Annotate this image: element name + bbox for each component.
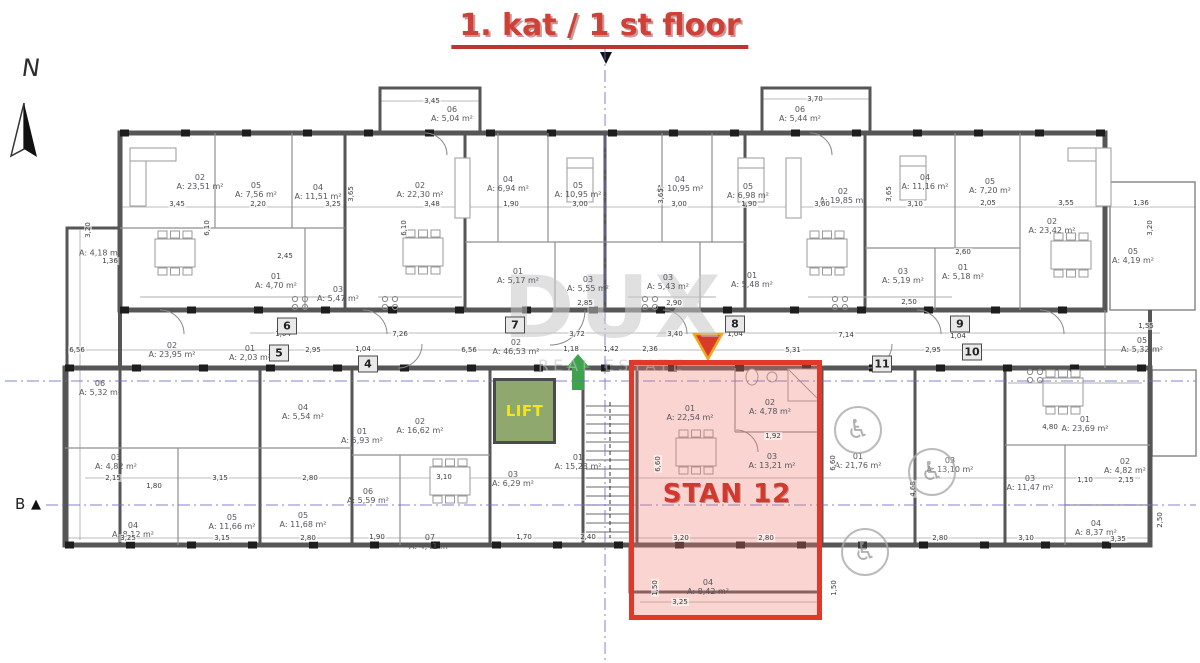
room-area-label: 01A: 5,17 m² [497,267,539,285]
dimension-label: 6,56 [460,346,478,354]
wheelchair-icon: ♿ [841,528,889,576]
dimension-label: 3,70 [806,95,824,103]
dimension-label: 3,15 [211,474,229,482]
dimension-label: 7,14 [837,331,855,339]
dimension-label: 1,92 [764,432,782,440]
dimension-label: 2,85 [576,299,594,307]
dimension-label: 2,45 [276,252,294,260]
room-area-label: 02A: 23,95 m² [148,341,195,359]
dimension-label: 3,10 [1017,534,1035,542]
room-area-label: 03A: 5,47 m² [317,285,359,303]
room-area-label: 06A: 5,32 m² [79,379,121,397]
page-title: 1. kat / 1 st floor [451,8,748,49]
dimension-label: 3,25 [324,200,342,208]
room-area-label: 01A: 5,18 m² [942,263,984,281]
room-area-label: 03A: 5,55 m² [567,275,609,293]
dimension-label: 3,20 [84,221,92,239]
room-area-label: 05A: 7,56 m² [235,181,277,199]
dimension-label: 6,10 [400,219,408,237]
room-area-label: 04A: 11,16 m² [901,173,948,191]
room-area-label: 02A: 23,42 m² [1028,217,1075,235]
room-area-label: 01A: 23,69 m² [1061,415,1108,433]
dimension-label: 1,04 [354,345,372,353]
dimension-label: 3,65 [885,185,893,203]
dimension-label: 3,35 [1109,535,1127,543]
room-area-label: 04A: 8,42 m² [687,578,729,596]
room-area-label: 06A: 5,59 m² [347,487,389,505]
wheelchair-icon: ♿ [834,406,882,454]
dimension-label: 2,40 [579,533,597,541]
room-area-label: 01A: 5,93 m² [341,427,383,445]
room-area-label: 05A: 11,66 m² [208,513,255,531]
dimension-label: 2,80 [931,534,949,542]
dimension-label: 1,90 [368,533,386,541]
dimension-label: 3,65 [347,185,355,203]
dimension-label: 3,10 [435,473,453,481]
grid-marker: 11 [872,356,892,373]
dimension-label: 3,45 [168,200,186,208]
dimension-label: 1,10 [1076,476,1094,484]
room-area-label: 02A: 4,82 m² [1104,457,1146,475]
room-area-label: 06A: 5,44 m² [779,105,821,123]
dimension-label: 2,60 [954,248,972,256]
room-area-label: 05A: 4,19 m² [1112,247,1154,265]
wheelchair-icon: ♿ [908,448,956,496]
room-area-label: 02A: 4,78 m² [749,398,791,416]
room-area-label: 02A: 16,62 m² [396,417,443,435]
dimension-label: 2,15 [104,474,122,482]
dimension-label: 4,80 [1041,423,1059,431]
dimension-label: 2,80 [299,534,317,542]
room-area-label: 03A: 4,82 m² [95,453,137,471]
dimension-label: 6,56 [68,346,86,354]
room-area-label: 05A: 11,68 m² [279,511,326,529]
dimension-label: 1,70 [515,533,533,541]
dimension-label: 3,45 [423,97,441,105]
dimension-label: 7,26 [391,330,409,338]
grid-marker: 5 [269,345,289,362]
dimension-label: 2,95 [304,346,322,354]
dimension-label: 2,50 [1156,511,1164,529]
dimension-label: 6,60 [654,455,662,473]
dimension-label: 1,50 [651,579,659,597]
room-area-label: 05A: 10,95 m² [554,181,601,199]
dimension-label: 3,00 [670,200,688,208]
room-area-label: 01A: 15,23 m² [554,453,601,471]
section-marker-label: B [15,495,25,513]
room-area-label: 07A: 4,41 m² [409,533,451,551]
dimension-label: 3,65 [657,187,665,205]
room-area-label: 05A: 6,98 m² [727,182,769,200]
room-area-label: 01A: 2,03 m² [229,344,271,362]
room-area-label: 04A: 5,54 m² [282,403,324,421]
dimension-label: 1,18 [562,345,580,353]
dimension-label: 3,60 [813,200,831,208]
room-area-label: 02A: 22,30 m² [396,181,443,199]
room-area-label: 05A: 7,20 m² [969,177,1011,195]
dimension-label: 2,95 [924,346,942,354]
room-area-label: 04A: 6,94 m² [487,175,529,193]
dimension-label: 3,00 [571,200,589,208]
room-area-label: 01A: 4,70 m² [255,272,297,290]
room-area-label: 03A: 13,21 m² [748,452,795,470]
room-area-label: 03A: 6,29 m² [492,470,534,488]
dimension-label: 6,10 [203,219,211,237]
dimension-label: 3,10 [906,200,924,208]
dimension-label: 3,15 [213,534,231,542]
dimension-label: 3,25 [671,598,689,606]
dimension-label: 2,80 [301,474,319,482]
dimension-label: 1,36 [1132,199,1150,207]
dimension-label: 3,55 [1057,199,1075,207]
dimension-label: 2,36 [641,345,659,353]
grid-marker: 4 [358,356,378,373]
dimension-label: 2,05 [979,199,997,207]
room-area-label: 01A: 22,54 m² [666,404,713,422]
dimension-label: 1,04 [949,332,967,340]
dimension-label: 2,15 [1117,476,1135,484]
grid-marker: 7 [505,317,525,334]
room-area-label: 02A: 23,51 m² [176,173,223,191]
room-area-label: 01A: 5,48 m² [731,271,773,289]
dimension-label: 1,55 [1137,322,1155,330]
dimension-label: 1,36 [101,257,119,265]
dimension-label: 1,42 [602,345,620,353]
plan-annotations: 02A: 23,51 m²05A: 7,56 m²04A: 11,51 m²A:… [0,0,1200,663]
room-area-label: 01A: 21,76 m² [834,452,881,470]
dimension-label: 2,80 [757,534,775,542]
room-area-label: 05A: 5,32 m² [1121,336,1163,354]
dimension-label: 3,48 [423,200,441,208]
dimension-label: 2,20 [249,200,267,208]
section-marker-arrow-icon: ▲ [31,497,41,512]
dimension-label: 6,60 [829,454,837,472]
grid-marker: 10 [962,344,982,361]
dimension-label: 3,72 [568,330,586,338]
dimension-label: 1,80 [145,482,163,490]
grid-marker: 6 [277,318,297,335]
floor-plan-page: DUX REAL ESTATE LIFT STAN 12 02A: 23,51 … [0,0,1200,663]
room-area-label: 06A: 5,04 m² [431,105,473,123]
room-area-label: 03A: 11,47 m² [1006,474,1053,492]
room-area-label: 03A: 5,43 m² [647,273,689,291]
dimension-label: 2,90 [665,299,683,307]
room-area-label: 04A: 11,51 m² [294,183,341,201]
room-area-label: 02A: 46,53 m² [492,338,539,356]
dimension-label: 1,50 [830,579,838,597]
dimension-label: 1,90 [502,200,520,208]
dimension-label: 2,50 [900,298,918,306]
grid-marker: 9 [950,316,970,333]
dimension-label: 3,40 [666,330,684,338]
grid-marker: 8 [725,316,745,333]
room-area-label: 03A: 5,19 m² [882,267,924,285]
dimension-label: 1,90 [740,200,758,208]
dimension-label: 3,20 [672,534,690,542]
dimension-label: 5,31 [784,346,802,354]
dimension-label: 3,20 [1146,219,1154,237]
dimension-label: 3,25 [119,534,137,542]
